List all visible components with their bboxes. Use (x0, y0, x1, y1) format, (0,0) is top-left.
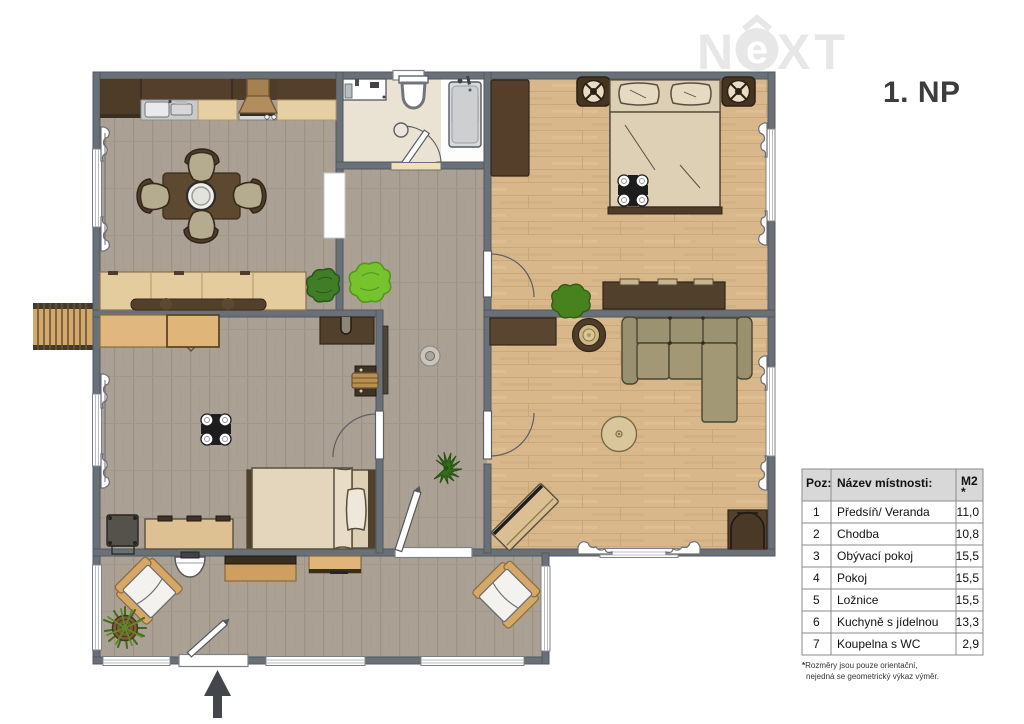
svg-text:e: e (746, 28, 768, 72)
svg-text:7: 7 (813, 637, 820, 651)
svg-text:10,8: 10,8 (956, 527, 980, 541)
svg-text:Poz:: Poz: (806, 476, 831, 490)
svg-text:15,5: 15,5 (956, 593, 980, 607)
svg-text:Kuchyně s jídelnou: Kuchyně s jídelnou (837, 615, 938, 629)
svg-text:13,3: 13,3 (956, 615, 980, 629)
svg-text:2,9: 2,9 (962, 637, 979, 651)
svg-text:15,5: 15,5 (956, 571, 980, 585)
svg-text:2: 2 (813, 527, 820, 541)
svg-text:*Rozměry jsou pouze orientační: *Rozměry jsou pouze orientační, (802, 661, 918, 670)
svg-text:nejedná se geometrický výkaz v: nejedná se geometrický výkaz výměr. (806, 672, 939, 681)
svg-text:Název místnosti:: Název místnosti: (837, 476, 932, 490)
svg-text:1: 1 (813, 505, 820, 519)
svg-text:Koupelna s WC: Koupelna s WC (837, 637, 921, 651)
svg-text:Pokoj: Pokoj (837, 571, 867, 585)
svg-text:15,5: 15,5 (956, 549, 980, 563)
svg-text:XT: XT (777, 24, 849, 80)
svg-text:3: 3 (813, 549, 820, 563)
svg-text:6: 6 (813, 615, 820, 629)
svg-text:4: 4 (813, 571, 820, 585)
svg-text:Předsíň/ Veranda: Předsíň/ Veranda (837, 505, 930, 519)
svg-text:1. NP: 1. NP (883, 76, 961, 109)
svg-text:11,0: 11,0 (957, 505, 980, 519)
svg-text:N: N (697, 24, 735, 80)
svg-text:5: 5 (813, 593, 820, 607)
svg-text:*: * (961, 485, 966, 499)
svg-text:Chodba: Chodba (837, 527, 879, 541)
svg-text:Obývací pokoj: Obývací pokoj (837, 549, 913, 563)
svg-text:Ložnice: Ložnice (837, 593, 879, 607)
